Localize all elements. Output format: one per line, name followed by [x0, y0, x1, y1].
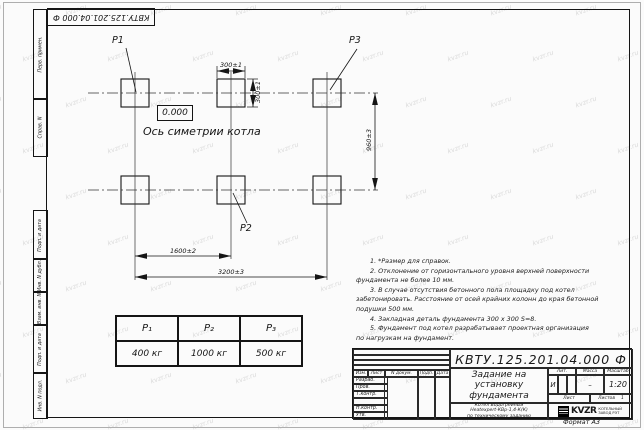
kvzr-logo-icon [558, 406, 569, 417]
dim-text-1600: 1600±2 [163, 247, 203, 255]
sheets-value: 1 [621, 396, 624, 401]
company-subtitle: КОТЕЛЬНЫЙ ЗАВОД РЭТ [598, 407, 622, 415]
mass-value: – [575, 374, 605, 395]
extension-lines [217, 66, 258, 107]
dim-text-300-height: 300±1 [254, 72, 262, 112]
anchor-label-p3: P3 [349, 35, 361, 46]
signature-cells [384, 376, 419, 420]
load-table-header-p3: P₃ [240, 316, 302, 341]
load-table-value-p2: 1000 кг [178, 341, 240, 366]
document-title-line: установку [475, 380, 524, 391]
load-table: P₁ P₂ P₃ 400 кг 1000 кг 500 кг [115, 315, 303, 367]
technical-notes: 1. *Размер для справок. 2. Отклонение от… [356, 257, 630, 343]
level-mark: 0.000 [157, 105, 193, 121]
load-table-value-p3: 500 кг [240, 341, 302, 366]
company-name: KVZR [571, 406, 596, 416]
scale-value: 1:20 [603, 374, 633, 395]
row-label-utv: Утв. [353, 411, 388, 420]
document-designation: КВТУ.125.201.04.000 Ф [449, 349, 633, 369]
note-line: забетонировать. Расстояние от осей крайн… [356, 295, 630, 305]
note-line: 5. Фундамент под котел разрабатывает про… [356, 324, 630, 334]
note-line: подушки 500 мм. [356, 305, 630, 315]
note-line: 1. *Размер для справок. [356, 257, 630, 267]
dim-text-960: 960±3 [365, 120, 373, 160]
load-table-value-p1: 400 кг [116, 341, 178, 366]
load-table-header-p2: P₂ [178, 316, 240, 341]
note-line: фундамента не более 10 мм. [356, 276, 630, 286]
document-title: Задание на установку фундамента [449, 367, 549, 404]
document-title-line: Задание на [472, 370, 527, 381]
leader-p1 [126, 48, 136, 92]
leader-p3 [330, 49, 357, 90]
note-line: 4. Закладная деталь фундамента 300 x 300… [356, 315, 630, 325]
title-block: Изм. Лист N докум. Подп. Дата Разраб. Пр… [352, 348, 632, 419]
dim-text-3200: 3200±3 [211, 268, 251, 276]
note-line: по нагрузкам на фундамент. [356, 334, 630, 344]
document-title-line: фундамента [469, 391, 529, 402]
sheets-label: Листов [598, 396, 615, 401]
anchor-label-p2: P2 [240, 223, 252, 234]
dim-text-300-width: 300±1 [211, 61, 251, 69]
note-line: 2. Отклонение от горизонтального уровня … [356, 267, 630, 277]
drawing-sheet: kvzr.rukvzr.rukvzr.rukvzr.rukvzr.rukvzr.… [0, 0, 644, 430]
anchor-label-p1: P1 [112, 35, 124, 46]
load-table-header-p1: P₁ [116, 316, 178, 341]
boiler-symmetry-axis-label: Ось симетрии котла [143, 125, 261, 138]
format-label: Формат А3 [563, 418, 600, 426]
product-description: Котел Водогрейный Heatexpert-КВр-1,4-К(К… [449, 402, 549, 420]
note-line: 3. В случае отсутствия бетонного пола пл… [356, 286, 630, 296]
product-line: по техническому заданию [467, 414, 531, 419]
